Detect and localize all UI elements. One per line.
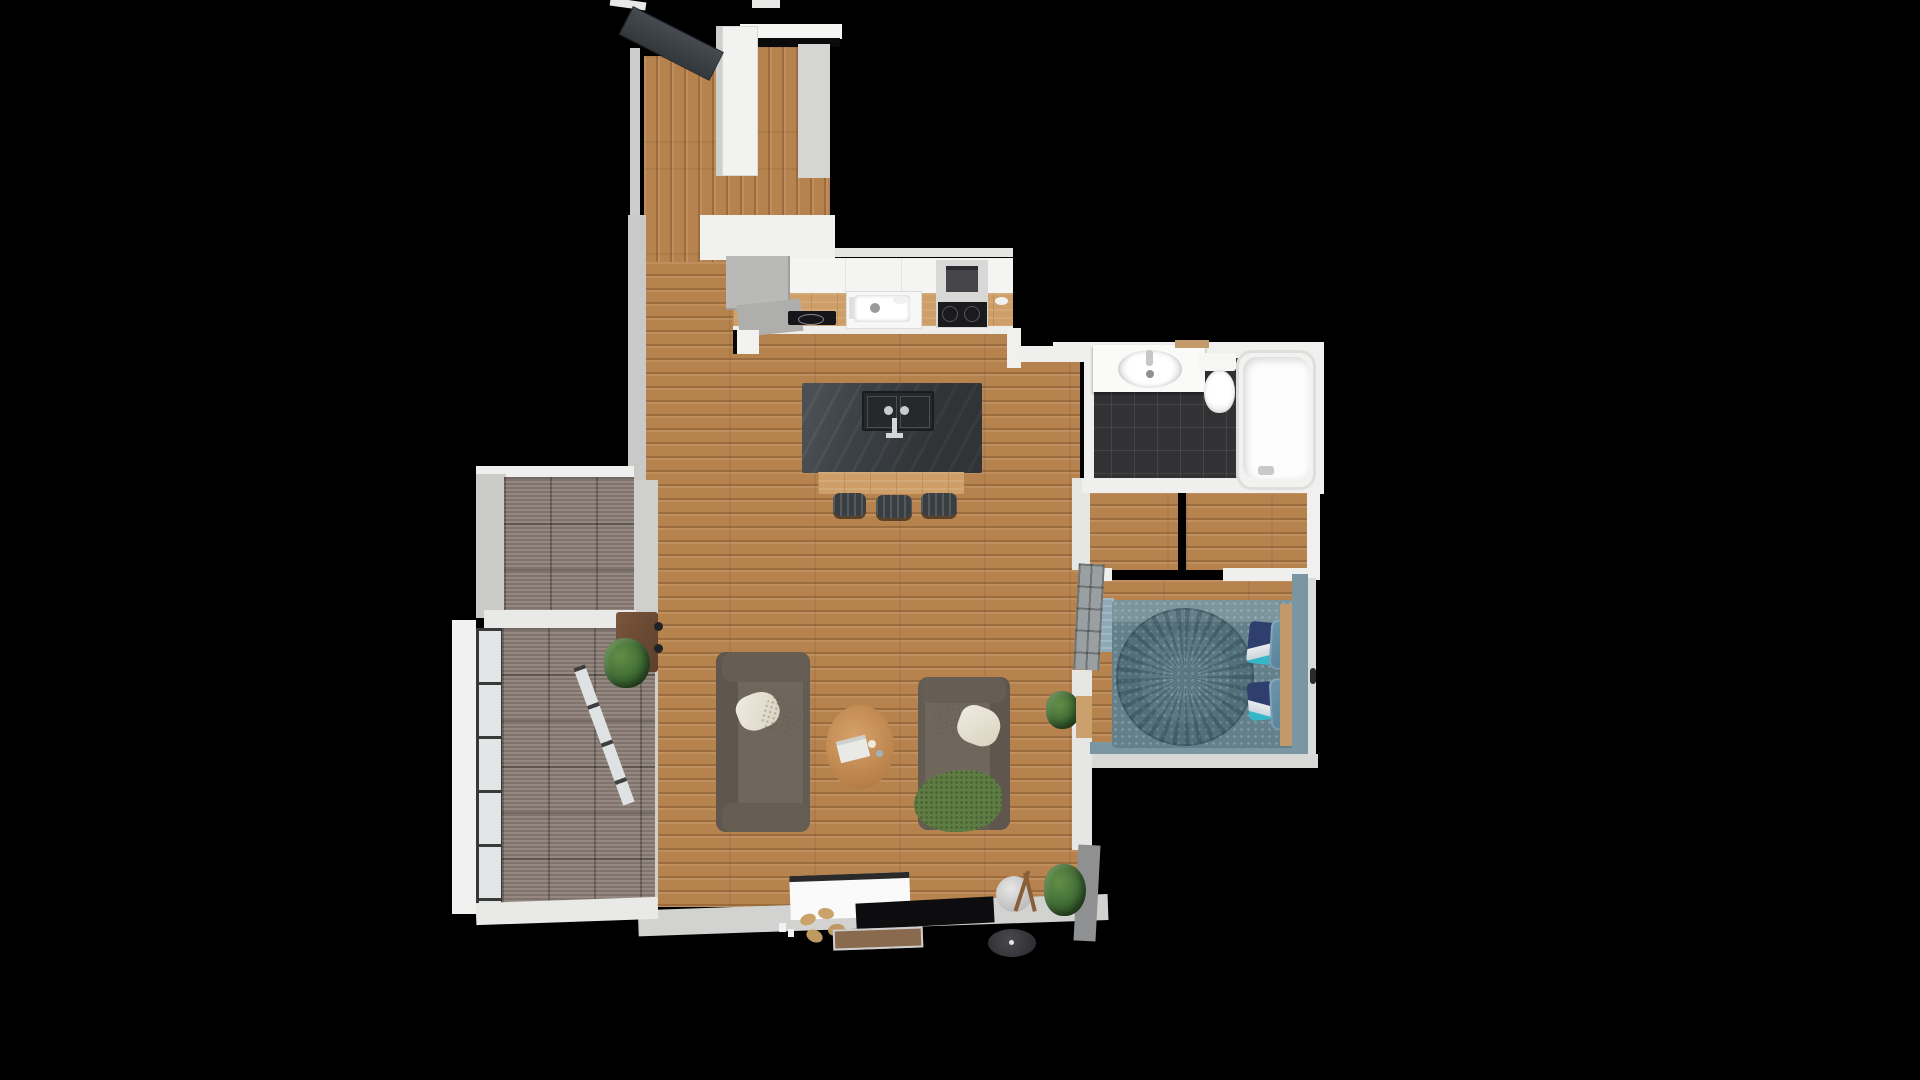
island-faucet-base — [886, 433, 903, 438]
bed-spiral-quilt — [1116, 608, 1254, 746]
wall-sliver-top — [610, 0, 647, 10]
corridor-wall-gap — [1178, 492, 1186, 570]
bedroom-south-wall — [1092, 754, 1318, 768]
shoe-tray — [833, 926, 924, 950]
terrace-door-handle-1[interactable] — [654, 622, 663, 631]
hall-wardrobe[interactable] — [722, 26, 758, 176]
vanity-drain — [1146, 370, 1154, 378]
terrace-divider-wall — [484, 610, 636, 630]
tub-faucet — [1258, 466, 1274, 475]
green-throw — [914, 770, 1002, 832]
table-item-2 — [876, 750, 883, 757]
island-bar-ledge — [818, 472, 964, 494]
terrace-glass-railing — [476, 628, 504, 914]
kitchen-window-void — [835, 195, 1013, 252]
floor-plan-canvas — [0, 0, 1920, 1080]
burner-1 — [942, 306, 958, 322]
dish-2 — [995, 297, 1008, 305]
island-knob-1 — [884, 406, 893, 415]
dish-1 — [893, 296, 907, 304]
hall-bath-wall — [1009, 346, 1095, 362]
kitchen-wall-stub — [733, 330, 759, 354]
wall-sliver-top-2 — [752, 0, 780, 8]
hob-ring — [798, 314, 824, 325]
bathtub-inner — [1243, 357, 1309, 479]
console-table[interactable] — [1076, 696, 1092, 738]
floor-chip-2 — [788, 929, 794, 937]
kitchen-window-wall — [700, 215, 835, 260]
living-west-wall-upper — [628, 215, 646, 481]
terrace-plant[interactable] — [604, 638, 650, 688]
hall-west-wall — [630, 48, 640, 218]
oven-door — [946, 266, 978, 292]
vanity-faucet — [1146, 350, 1153, 366]
table-item-1 — [868, 740, 876, 748]
sofa-left-arm-bottom — [722, 803, 808, 832]
vacuum-button — [1009, 940, 1014, 945]
bar-stool-1[interactable] — [833, 493, 866, 516]
bar-stool-3[interactable] — [921, 493, 957, 516]
burner-2 — [964, 306, 980, 322]
pantry-east-wall — [798, 44, 830, 178]
bedroom-window-handle — [1310, 668, 1316, 684]
corridor-right-floor — [1186, 492, 1307, 570]
bedroom-door[interactable] — [1073, 563, 1105, 670]
island-knob-2 — [900, 406, 909, 415]
bar-stool-2[interactable] — [876, 495, 912, 518]
terrace-upper-deck — [504, 477, 634, 615]
living-plant[interactable] — [1044, 864, 1086, 916]
terrace-door-handle-2[interactable] — [654, 644, 663, 653]
bed-east-band — [1292, 574, 1308, 752]
sink-drain — [870, 303, 880, 313]
kitchen-east-stub — [1007, 328, 1021, 368]
corridor-left-floor — [1082, 492, 1178, 570]
bath-shelf — [1175, 340, 1209, 348]
kitchen-window-sill — [835, 248, 1013, 257]
sofa-right-arm-top — [922, 677, 1006, 703]
dining-plant[interactable] — [1046, 691, 1080, 729]
terrace-lower-outer-wall — [452, 620, 476, 914]
toilet-bowl — [1204, 370, 1235, 413]
floor-chip-1 — [779, 923, 786, 932]
toilet-tank[interactable] — [1198, 353, 1236, 371]
terrace-upper-west-wall — [476, 474, 506, 618]
sofa-left-arm-top — [722, 652, 808, 682]
sink-faucet — [849, 297, 854, 319]
corridor-east-wall — [1307, 478, 1320, 580]
